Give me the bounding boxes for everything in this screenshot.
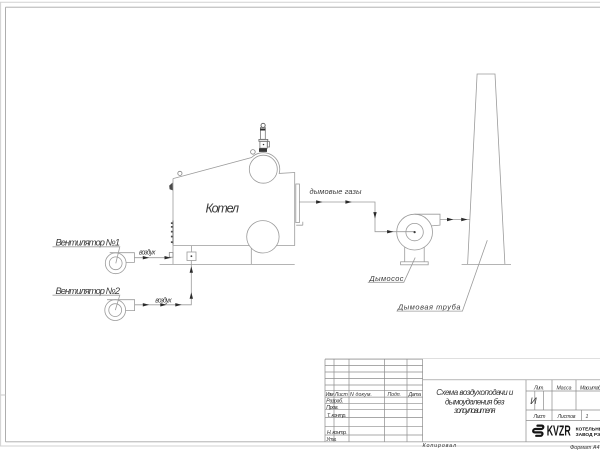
svg-text:Лист: Лист (334, 392, 349, 398)
svg-text:ЗАВОД РЭМЭКС: ЗАВОД РЭМЭКС (576, 432, 600, 438)
svg-text:1: 1 (586, 414, 589, 420)
svg-text:Котел: Котел (206, 202, 240, 216)
svg-text:Дымосос: Дымосос (369, 274, 404, 283)
svg-text:дымовые газы: дымовые газы (310, 187, 363, 196)
svg-text:дымоудаления без: дымоудаления без (445, 397, 505, 406)
svg-text:Копировал: Копировал (423, 443, 457, 449)
svg-text:Подп.: Подп. (388, 392, 402, 398)
svg-text:Разраб.: Разраб. (326, 399, 343, 405)
svg-text:воздух: воздух (155, 297, 172, 305)
svg-text:Формат А4: Формат А4 (570, 445, 600, 450)
svg-text:Дата: Дата (408, 392, 422, 398)
svg-text:Масштаб: Масштаб (580, 385, 600, 391)
svg-text:Т. контр.: Т. контр. (327, 413, 347, 419)
svg-text:воздух: воздух (139, 249, 156, 257)
svg-text:Лит.: Лит. (533, 385, 544, 391)
svg-text:Пров.: Пров. (326, 405, 339, 411)
svg-text:Листов: Листов (557, 414, 576, 420)
svg-text:И: И (530, 396, 537, 406)
svg-text:Масса: Масса (557, 385, 572, 391)
svg-text:Изм: Изм (326, 392, 334, 398)
svg-text:Н. контр.: Н. контр. (327, 430, 347, 436)
svg-text:KVZR: KVZR (547, 424, 571, 440)
svg-text:Дымовая труба: Дымовая труба (397, 303, 461, 312)
svg-text:Вентилятор №2: Вентилятор №2 (56, 286, 121, 296)
svg-text:Утв.: Утв. (326, 437, 337, 443)
svg-text:N докум.: N докум. (350, 392, 372, 398)
svg-text:Лист: Лист (533, 414, 547, 420)
svg-text:Схема воздухоподачи и: Схема воздухоподачи и (436, 388, 514, 397)
svg-text:золоуловителя: золоуловителя (453, 406, 496, 415)
svg-text:Вентилятор №1: Вентилятор №1 (56, 237, 121, 247)
